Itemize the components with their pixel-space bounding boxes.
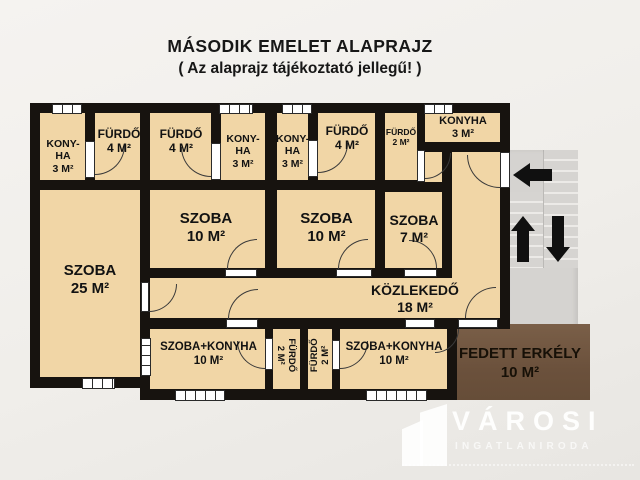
building-shape-front — [420, 404, 447, 466]
room-area: 2 M² — [383, 137, 419, 147]
room-name: FÜRDŐ — [95, 127, 143, 141]
entrance-door-frame — [500, 152, 510, 188]
wall — [375, 182, 452, 192]
logo-dotted-line — [402, 464, 634, 466]
room-area: 7 M² — [385, 229, 443, 246]
window — [82, 378, 115, 389]
room-area: 3 M² — [38, 163, 88, 175]
window — [175, 390, 225, 401]
room-label-konyha-3: KONY- HA 3 M² — [276, 133, 309, 170]
room-label-szoba-25: SZOBA 25 M² — [40, 262, 140, 297]
arrow-left-shaft — [530, 169, 552, 181]
room-label-szoba-konyha-1: SZOBA+KONYHA 10 M² — [152, 341, 265, 368]
door-frame — [225, 269, 257, 277]
room-label-konyha-1: KONY- HA 3 M² — [38, 138, 88, 175]
room-area: 10 M² — [152, 355, 265, 369]
room-area: 25 M² — [40, 280, 140, 298]
door-frame — [417, 150, 425, 182]
arrow-up-icon — [511, 216, 535, 231]
room-label-konyha-4: KONYHA 3 M² — [425, 115, 501, 141]
door-frame — [226, 319, 258, 328]
arrow-down-icon — [546, 247, 570, 262]
logo-brand-text: VÁROSI — [452, 406, 637, 437]
room-name: SZOBA — [277, 210, 376, 228]
room-name: KÖZLEKEDŐ — [345, 282, 485, 299]
window — [282, 104, 312, 114]
wall — [500, 103, 510, 329]
room-label-szoba-konyha-2: SZOBA+KONYHA 10 M² — [340, 341, 448, 368]
arrow-up-shaft — [517, 231, 529, 262]
arrow-left-icon — [513, 163, 530, 187]
door-frame — [336, 269, 372, 277]
door-frame — [308, 140, 318, 177]
room-area: 3 M² — [425, 128, 501, 141]
wall — [140, 377, 150, 400]
room-name: FEDETT ERKÉLY — [457, 345, 583, 364]
room-area: 4 M² — [318, 138, 376, 152]
title-line1: MÁSODIK EMELET ALAPRAJZ — [80, 36, 520, 57]
room-label-furdo-2: FÜRDŐ 4 M² — [150, 127, 212, 155]
room-label-furdo-4: FÜRDŐ 2 M² — [383, 127, 419, 147]
brand-logo: VÁROSI INGATLANIRODA — [400, 402, 638, 472]
room-name: KONY- HA — [276, 133, 309, 158]
room-area: 10 M² — [340, 355, 448, 369]
room-area: 10 M² — [277, 228, 376, 246]
building-shape-back — [402, 420, 423, 466]
room-name: SZOBA — [150, 210, 262, 228]
floor-plan-page: MÁSODIK EMELET ALAPRAJZ ( Az alaprajz tá… — [0, 0, 640, 480]
room-label-furdo-1: FÜRDŐ 4 M² — [95, 127, 143, 155]
door-frame — [265, 338, 273, 370]
arrow-down-shaft — [552, 216, 564, 247]
room-name: SZOBA — [40, 262, 140, 280]
balcony-door-frame — [458, 319, 498, 328]
room-name: SZOBA+KONYHA — [152, 341, 265, 355]
window — [141, 338, 151, 376]
wall — [425, 142, 510, 152]
room-name: SZOBA+KONYHA — [340, 341, 448, 355]
room-label-szoba-10a: SZOBA 10 M² — [150, 210, 262, 245]
room-area: 10 M² — [457, 364, 583, 383]
room-label-szoba-10b: SZOBA 10 M² — [277, 210, 376, 245]
stairwell-divider — [543, 150, 544, 268]
room-name: SZOBA — [385, 212, 443, 229]
building-icon — [402, 404, 456, 466]
room-area: 2 M² — [275, 330, 286, 380]
wall — [40, 180, 425, 190]
title-line2: ( Az alaprajz tájékoztató jellegű! ) — [80, 60, 520, 78]
window — [219, 104, 253, 114]
window — [366, 390, 427, 401]
room-label-konyha-2: KONY- HA 3 M² — [220, 133, 266, 170]
logo-subtitle-text: INGATLANIRODA — [455, 441, 640, 452]
door-frame — [405, 319, 435, 328]
room-name: FÜRDŐ — [150, 127, 212, 141]
room-area: 4 M² — [150, 141, 212, 155]
room-label-kozlekedo: KÖZLEKEDŐ 18 M² — [345, 282, 485, 315]
room-area: 3 M² — [276, 158, 309, 170]
door-frame — [141, 282, 149, 312]
window — [52, 104, 82, 114]
page-title: MÁSODIK EMELET ALAPRAJZ ( Az alaprajz tá… — [80, 36, 520, 78]
room-area: 2 M² — [320, 330, 331, 380]
room-name: KONYHA — [425, 115, 501, 128]
room-name: KONY- HA — [38, 138, 88, 163]
room-name: FÜRDŐ — [309, 330, 320, 380]
room-label-furdo-5: FÜRDŐ 2 M² — [275, 330, 297, 380]
room-label-fedett-erkely: FEDETT ERKÉLY 10 M² — [457, 345, 583, 383]
room-area: 4 M² — [95, 141, 143, 155]
room-name: KONY- HA — [220, 133, 266, 158]
room-label-furdo-3: FÜRDŐ 4 M² — [318, 124, 376, 152]
door-frame — [404, 269, 437, 277]
room-name: FÜRDŐ — [383, 127, 419, 137]
window — [424, 104, 453, 114]
room-area: 10 M² — [150, 228, 262, 246]
wall — [300, 329, 308, 389]
room-label-furdo-6: FÜRDŐ 2 M² — [309, 330, 331, 380]
room-name: FÜRDŐ — [286, 330, 297, 380]
room-area: 18 M² — [345, 299, 485, 316]
door-frame — [332, 340, 340, 370]
room-name: FÜRDŐ — [318, 124, 376, 138]
room-area: 3 M² — [220, 158, 266, 170]
room-label-szoba-7: SZOBA 7 M² — [385, 212, 443, 245]
